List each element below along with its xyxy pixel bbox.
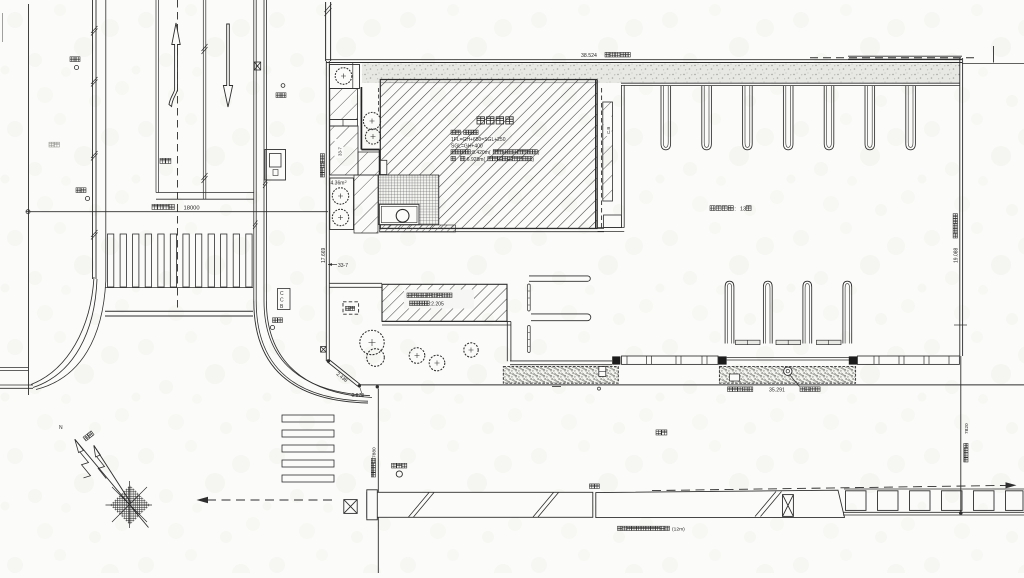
- svg-text:38.524: 38.524: [581, 53, 597, 59]
- svg-text:SGL=GH+400: SGL=GH+400: [451, 144, 483, 150]
- svg-text:C.B: C.B: [606, 127, 611, 134]
- svg-text:(12m): (12m): [672, 527, 685, 533]
- svg-text::8.420m(: :8.420m(: [471, 150, 491, 156]
- svg-text:35.291: 35.291: [769, 388, 785, 394]
- svg-text:18000: 18000: [184, 206, 200, 212]
- svg-text:0.970: 0.970: [352, 393, 365, 399]
- svg-text:33-7: 33-7: [338, 263, 348, 269]
- svg-text::2.205: :2.205: [430, 302, 444, 308]
- svg-text:13: 13: [740, 207, 746, 213]
- svg-text:1FL=GH+650=SGL+250: 1FL=GH+650=SGL+250: [451, 137, 506, 143]
- svg-text:7880: 7880: [372, 447, 378, 458]
- svg-text:N: N: [59, 425, 63, 431]
- svg-text::: :: [461, 131, 462, 137]
- svg-text:19.088: 19.088: [954, 247, 960, 263]
- svg-text::6.928m(: :6.928m(: [465, 157, 485, 163]
- svg-text:17.669: 17.669: [321, 247, 327, 263]
- svg-text:7820: 7820: [964, 423, 970, 434]
- svg-text:C: C: [280, 291, 284, 297]
- svg-text:4.36m: 4.36m: [331, 181, 345, 187]
- svg-text:33-7: 33-7: [338, 147, 343, 156]
- svg-text:C: C: [280, 298, 284, 304]
